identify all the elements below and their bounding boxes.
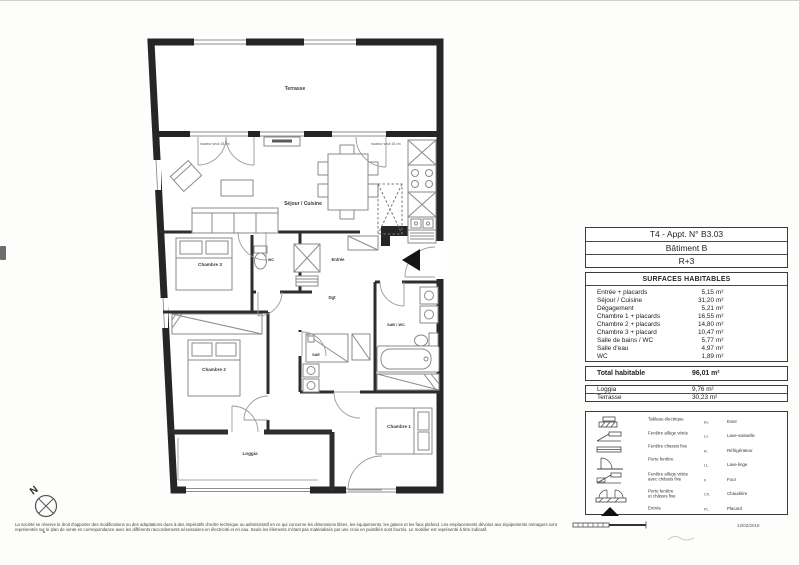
abbr-label: Evier [727,419,737,424]
legend-row: Fenêtre allège vitrée avec châssis fixe [595,471,625,485]
surface-value: 5,77 [688,337,714,344]
seuil-annotation-left: hauteur seuil 18 cm [200,142,230,146]
surface-value: 4,97 [688,345,714,352]
floor-level: R+3 [586,254,787,268]
surface-unit: m² [714,321,732,328]
abbr: PL. [704,507,710,512]
abbr-label: Four [727,477,736,482]
plan-date: 12/02/2018 [737,523,760,528]
legend-row: Fenêtre chassis fixe [595,443,625,457]
legend-label: Tableau électrique [648,417,684,422]
label-wc: WC [268,258,275,262]
legend-row: Porte fenêtre et châssis fixe [595,488,627,502]
compass: N [28,484,56,516]
abbr: Ev. [704,420,709,425]
legend-box: Tableau électrique Fenêtre allège vitrée… [585,411,788,515]
scanned-floor-plan-page: Terrasse Séjour / Cuisine Chambre 3 WC E… [0,0,800,565]
fenetre-chassis-fixe-icon [595,443,625,456]
surface-unit: m² [714,289,732,296]
legal-disclaimer: La société se réserve le droit d'apporte… [15,522,558,532]
label-chambre1: Chambre 1 [387,424,411,429]
label-entree: Entrée [331,257,345,262]
surface-value: 5,21 [688,305,714,312]
label-loggia: Loggia [242,451,258,456]
surface-label: WC [586,353,688,360]
surface-row: Dégagement5,21m² [586,305,787,313]
surface-value: 14,80 [688,321,714,328]
surface-label: Entrée + placards [586,289,688,296]
label-sdb: SdB / WC [387,322,405,327]
surface-unit: m² [714,337,732,344]
surface-row: Chambre 1 + placards16,55m² [586,313,787,321]
surface-value: 1,89 [688,353,714,360]
surface-unit: m² [714,305,732,312]
label-dgt: Dgt [329,295,337,300]
legend-row: Entrée [595,505,625,519]
total-label: Total habitable [586,370,692,377]
label-chambre3: Chambre 3 [198,262,222,267]
legend-label: Fenêtre chassis fixe [648,444,687,449]
surface-row: Salle d'eau4,97m² [586,345,787,353]
surface-unit: m² [714,353,732,360]
legend-row: Porte fenêtre [595,456,625,470]
label-chambre2: Chambre 2 [202,367,226,372]
porte-fenetre-et-chassis-fixe-icon [595,488,627,503]
legend-row: Tableau électrique [595,416,625,430]
annex-row: Loggia 9,76 m² [586,386,787,393]
loggia-value: 9,76 m² [692,386,787,393]
surface-unit: m² [714,313,732,320]
surface-value: 5,15 [688,289,714,296]
abbr: LL. [704,463,709,468]
porte-fenetre-icon [595,456,625,471]
scale-bar [573,522,646,529]
abbr-label: Lave-linge [727,462,747,467]
annex-surfaces-box: Loggia 9,76 m² Terrasse 30,23 m² [585,385,788,402]
apartment-id: T4 - Appt. N° B3.03 [586,228,787,241]
surface-label: Séjour / Cuisine [586,297,688,304]
surfaces-table: SURFACES HABITABLES Entrée + placards5,1… [585,272,788,362]
surface-label: Chambre 1 + placards [586,313,688,320]
surface-row: Salle de bains / WC5,77m² [586,337,787,345]
surface-row: Chambre 3 + placard10,47m² [586,329,787,337]
surface-label: Chambre 2 + placards [586,321,688,328]
terrasse-value: 30,23 m² [692,394,787,401]
surface-unit: m² [714,297,732,304]
surface-row: Séjour / Cuisine31,20m² [586,297,787,305]
surfaces-title: SURFACES HABITABLES [586,273,787,286]
surface-row: Chambre 2 + placards14,80m² [586,321,787,329]
terrasse-label: Terrasse [586,394,692,401]
surface-unit: m² [714,329,732,336]
label-sejour: Séjour / Cuisine [284,201,322,207]
total-habitable-box: Total habitable 96,01 m² [585,366,788,381]
legend-label: Fenêtre allège vitrée [648,431,688,436]
surface-label: Salle de bains / WC [586,337,688,344]
abbr: R. [704,449,708,454]
label-terrasse: Terrasse [285,86,306,92]
legend-label: Porte fenêtre [648,457,673,462]
fenetre-allege-vitree-icon [595,430,625,443]
tableau-electrique-icon [595,416,625,429]
surface-unit: m² [714,345,732,352]
seuil-annotation-right: hauteur seuil 18 cm [371,142,401,146]
building-name: Bâtiment B [586,241,787,255]
surfaces-rows: Entrée + placards5,15m² Séjour / Cuisine… [586,286,787,361]
abbr: F. [704,478,707,483]
abbr: Lv. [704,434,709,439]
surface-label: Salle d'eau [586,345,688,352]
abbr-label: Réfrigérateur [727,448,753,453]
legend-row: Fenêtre allège vitrée [595,430,625,444]
abbr: Ch. [704,492,710,497]
apartment-header-table: T4 - Appt. N° B3.03 Bâtiment B R+3 [585,227,788,268]
label-sde: SdE [312,352,320,357]
entree-icon [595,505,625,518]
surface-row: Entrée + placards5,15m² [586,289,787,297]
scan-squiggle [668,536,694,540]
loggia-label: Loggia [586,386,692,393]
surface-value: 16,55 [688,313,714,320]
legend-label: Entrée [648,506,661,511]
surface-label: Chambre 3 + placard [586,329,688,336]
surface-value: 31,20 [688,297,714,304]
abbr-label: Lave-vaisselle [727,433,755,438]
compass-north-label: N [28,484,40,497]
total-value: 96,01 m² [692,370,787,377]
surface-value: 10,47 [688,329,714,336]
surface-label: Dégagement [586,305,688,312]
abbr-label: Chaudière [727,491,747,496]
abbr-label: Placard [727,506,742,511]
surface-row: WC1,89m² [586,353,787,361]
annex-row: Terrasse 30,23 m² [586,393,787,401]
fenetre-allege-vitree-avec-chassis-fixe-icon [595,471,625,485]
